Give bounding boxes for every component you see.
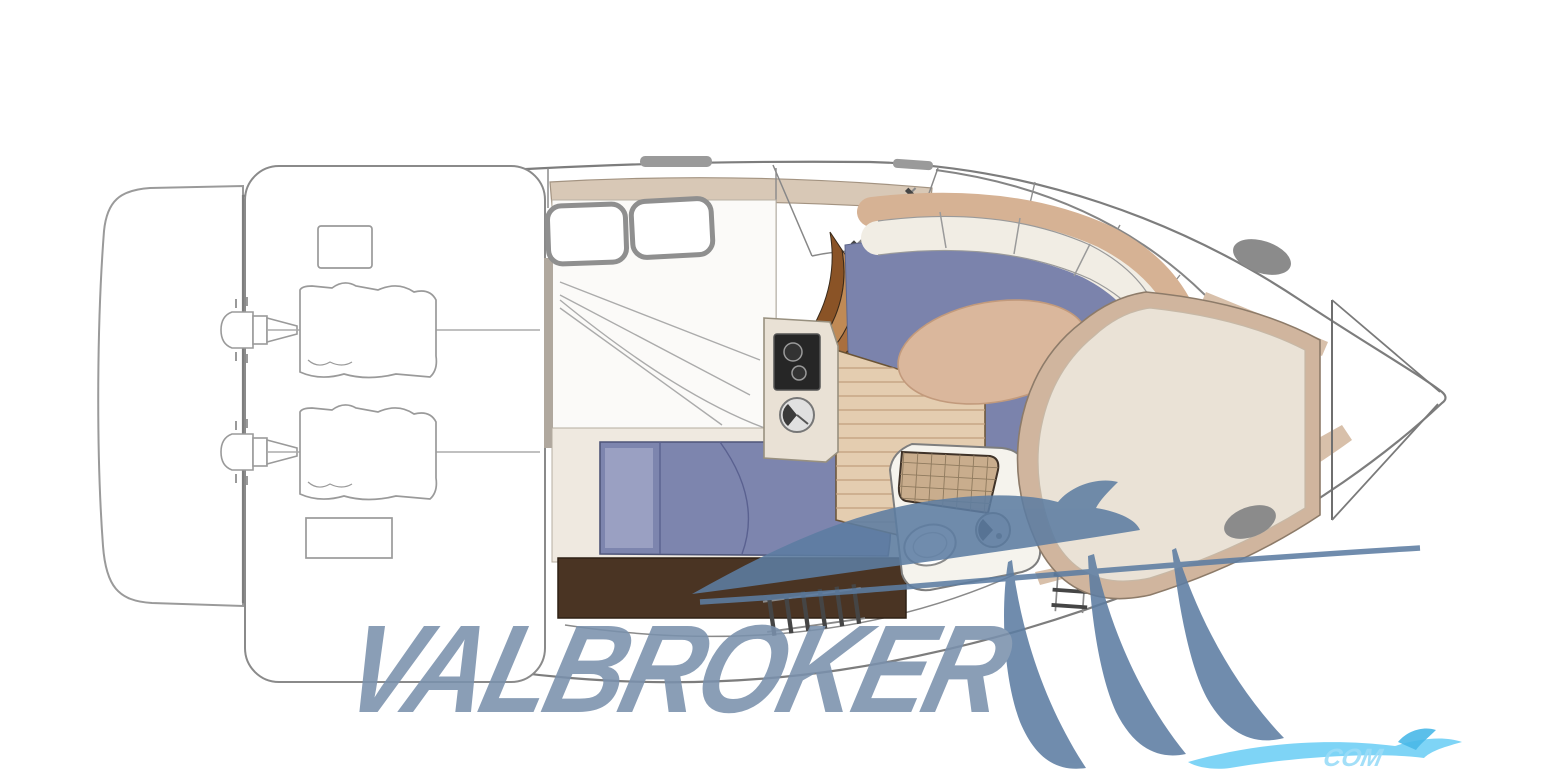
storage-locker-top xyxy=(318,226,372,268)
stove-burner xyxy=(784,343,802,361)
corner-watermark-text: COM xyxy=(1321,744,1386,772)
storage-locker-bottom xyxy=(306,518,392,558)
mid-cabin xyxy=(544,198,776,448)
boat-floor-plan-image: VALBROKER COM xyxy=(0,0,1560,780)
galley xyxy=(764,318,838,462)
corner-watermark: COM xyxy=(1188,729,1462,772)
pillow xyxy=(631,198,714,258)
pillow xyxy=(547,204,627,265)
boat-floor-plan: VALBROKER COM xyxy=(0,0,1560,780)
aft-berth-pillow xyxy=(605,448,653,548)
watermark-text: VALBROKER xyxy=(331,600,1024,740)
galley-stove xyxy=(774,334,820,390)
mid-cabin-wall-strip xyxy=(544,258,553,448)
top-hatch-bar xyxy=(640,156,712,167)
swim-platform xyxy=(98,186,243,606)
stove-burner xyxy=(792,366,806,380)
